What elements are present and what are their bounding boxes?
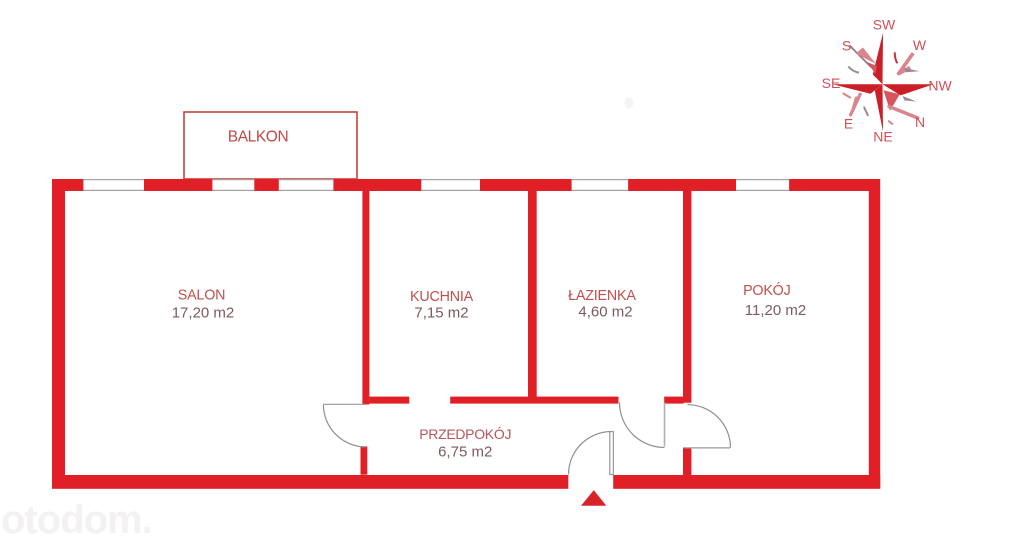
svg-text:S: S <box>842 37 851 53</box>
svg-text:11,20 m2: 11,20 m2 <box>745 302 806 319</box>
svg-text:BALKON: BALKON <box>228 129 289 146</box>
svg-text:W: W <box>913 37 927 53</box>
svg-text:POKÓJ: POKÓJ <box>743 282 791 299</box>
svg-text:4,60 m2: 4,60 m2 <box>578 304 632 321</box>
svg-text:7,15 m2: 7,15 m2 <box>414 305 468 322</box>
svg-text:NE: NE <box>873 129 892 145</box>
svg-text:N: N <box>915 114 925 130</box>
svg-text:ŁAZIENKA: ŁAZIENKA <box>568 288 636 304</box>
svg-text:17,20 m2: 17,20 m2 <box>172 305 235 322</box>
svg-text:NW: NW <box>928 78 952 94</box>
svg-text:KUCHNIA: KUCHNIA <box>410 289 474 305</box>
svg-text:otodom.: otodom. <box>1 498 152 538</box>
svg-text:6,75 m2: 6,75 m2 <box>438 443 492 460</box>
svg-text:E: E <box>844 116 853 132</box>
svg-text:PRZEDPOKÓJ: PRZEDPOKÓJ <box>419 426 511 442</box>
svg-text:SE: SE <box>822 75 841 91</box>
svg-text:SW: SW <box>873 16 896 32</box>
svg-text:SALON: SALON <box>178 287 225 303</box>
